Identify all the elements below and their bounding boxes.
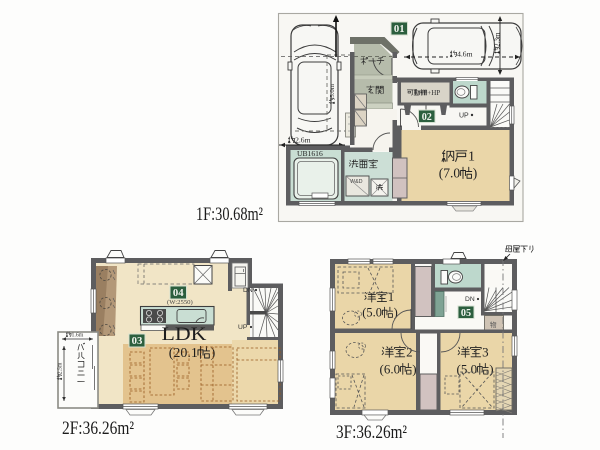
svg-text:(5.0: (5.0 <box>362 306 382 320</box>
svg-text:UB1616: UB1616 <box>297 149 323 158</box>
svg-text:(6.0: (6.0 <box>380 361 401 376</box>
svg-text:(7.0: (7.0 <box>439 166 461 181</box>
svg-text:(W:2550): (W:2550) <box>167 299 193 306</box>
svg-text:): ) <box>473 166 478 181</box>
svg-text:): ) <box>412 361 416 376</box>
svg-text:1: 1 <box>468 150 475 165</box>
svg-text:3F:36.26m²: 3F:36.26m² <box>336 423 407 443</box>
svg-text:1.6m: 1.6m <box>72 332 84 338</box>
svg-text:5.0m: 5.0m <box>329 83 336 97</box>
svg-text:2.3m: 2.3m <box>493 32 501 47</box>
svg-text:02: 02 <box>422 112 432 123</box>
svg-text:2F:36.26m²: 2F:36.26m² <box>62 419 134 439</box>
svg-text:04: 04 <box>173 287 184 299</box>
svg-text:05: 05 <box>461 308 471 319</box>
svg-text:3: 3 <box>482 344 489 359</box>
svg-text:2.5m: 2.5m <box>57 362 63 374</box>
svg-text:2.6m: 2.6m <box>295 136 310 145</box>
svg-text:LDK: LDK <box>162 324 207 345</box>
svg-text:01: 01 <box>394 23 405 35</box>
svg-text:+HP: +HP <box>427 89 440 97</box>
svg-text:DN: DN <box>243 287 253 294</box>
svg-text:UP: UP <box>238 324 248 331</box>
svg-text:4.6m: 4.6m <box>457 50 472 59</box>
svg-text:UP: UP <box>459 112 469 119</box>
svg-text:1F:30.68m²: 1F:30.68m² <box>196 205 263 225</box>
svg-text:03: 03 <box>132 335 143 347</box>
svg-text:物: 物 <box>490 320 497 329</box>
svg-text:W&D: W&D <box>350 179 363 185</box>
svg-text:(20.1: (20.1 <box>169 346 198 361</box>
svg-text:(5.0: (5.0 <box>457 361 478 376</box>
svg-text:DN: DN <box>465 296 475 303</box>
